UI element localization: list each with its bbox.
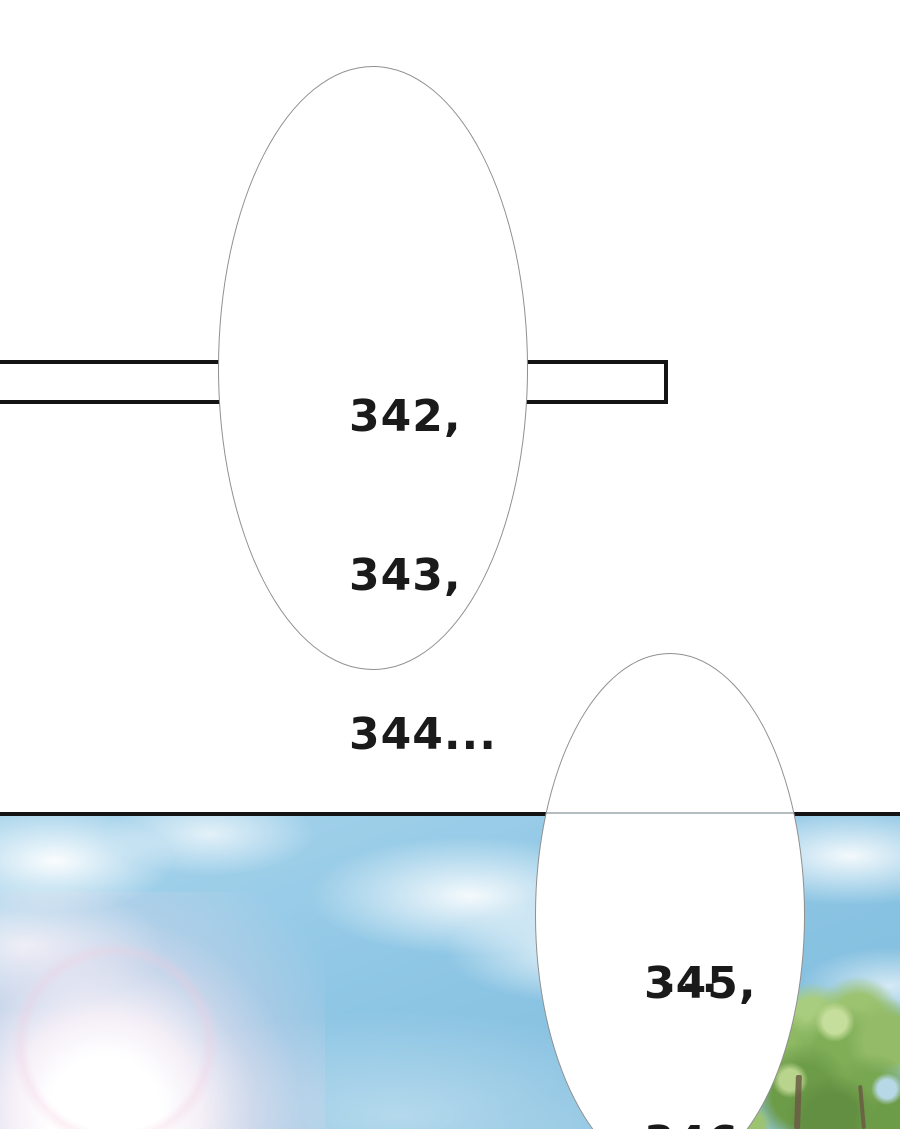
foliage-sky-gap	[871, 1073, 900, 1105]
panel-line-showthrough	[536, 812, 804, 814]
bubble-line: 344...	[349, 708, 497, 761]
sun-glare-icon	[0, 892, 325, 1129]
bubble-line: 342,	[349, 390, 497, 443]
foliage-highlight-blob	[815, 1002, 855, 1042]
speech-bubble-bottom: 345, 346 ...	[535, 653, 805, 1129]
comic-page: 342, 343, 344... 345,	[0, 0, 900, 1129]
speech-bubble-top: 342, 343, 344...	[218, 66, 528, 670]
bubble-line: 346	[644, 1116, 757, 1129]
bubble-ellipsis: ...	[660, 951, 722, 1004]
bubble-line: 343,	[349, 549, 497, 602]
speech-bubble-top-text: 342, 343, 344...	[349, 284, 497, 867]
